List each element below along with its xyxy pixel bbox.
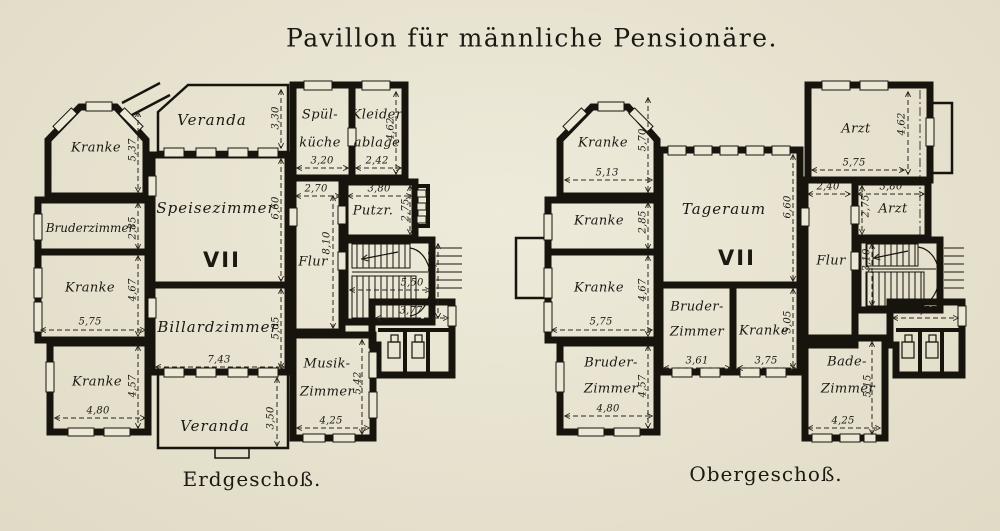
dim-kranke-w3-w-og: 5,75 (589, 317, 612, 328)
room-label-kranke-w2-og: Kranke (574, 214, 624, 229)
dim-flur-h-eg: 8,10 (322, 231, 333, 254)
room-label-veranda-n: Veranda (177, 111, 247, 129)
dim-arzt-n-w: 5,75 (842, 158, 865, 169)
room-label-flur-og: Flur (816, 254, 845, 269)
room-label-arzt-s: Arzt (878, 202, 907, 217)
room-label-bruderzimmer-m-1: Bruder- (670, 300, 724, 315)
dim-kranke-sw-w-eg: 4,80 (86, 406, 109, 417)
dim-bruderzimmer-sw-h: 4,57 (638, 374, 649, 397)
room-label-musikzimmer-2: Zimmer (300, 385, 354, 400)
room-label-tageraum: Tageraum (682, 200, 766, 218)
dim-flur-w-og: 2,40 (816, 182, 839, 193)
room-label-arzt-n: Arzt (841, 122, 870, 137)
room-label-veranda-s: Veranda (180, 417, 250, 435)
room-label-speisezimmer: Speisezimmer (156, 199, 275, 217)
dim-bruderzimmer-sw-w: 4,80 (596, 404, 619, 415)
room-label-bruderzimmer-eg: Bruderzimmer (46, 221, 135, 235)
dim-tageraum-h: 6,60 (783, 195, 794, 218)
caption-erdgeschoss: Erdgeschoß. (183, 467, 322, 491)
dim-kranke-nw-eg: 5,37 (128, 138, 139, 161)
dim-kranke-w-h-eg: 4,67 (128, 278, 139, 301)
dim-kranke-w3-h-og: 4,67 (638, 278, 649, 301)
room-label-putzraum: Putzr. (353, 204, 394, 219)
dim-treppe-w-eg: 5,50 (400, 278, 423, 289)
dim-billardzimmer-h: 5,05 (271, 316, 282, 339)
dim-arzt-n-h: 4,62 (897, 112, 908, 135)
room-label-kranke-sw-eg: Kranke (72, 375, 122, 390)
room-label-spuelkueche-2: küche (299, 136, 341, 151)
room-label-spuelkueche-1: Spül- (302, 108, 338, 123)
room-label-bruderzimmer-sw-2: Zimmer (584, 382, 638, 397)
room-label-bruderzimmer-sw-1: Bruder- (584, 356, 638, 371)
dim-abort-og: 3,77 (913, 306, 936, 317)
dim-putzraum-w: 3,80 (367, 184, 390, 195)
room-label-musikzimmer-1: Musik- (304, 357, 351, 372)
pavilion-numeral-eg: VII (203, 248, 241, 272)
dim-badezimmer-h: 5,15 (863, 374, 874, 397)
dim-speisezimmer-h: 6,60 (271, 196, 282, 219)
dim-abort-eg: 3,77 (399, 306, 422, 317)
room-label-kranke-w-eg: Kranke (65, 281, 115, 296)
page-title: Pavillon für männliche Pensionäre. (286, 24, 778, 53)
dim-bruderzimmer-m-w: 3,61 (685, 356, 708, 367)
dim-billardzimmer-w: 7,43 (207, 355, 230, 366)
dim-treppe-h-og: 3,10 (862, 248, 873, 271)
dim-arzt-s-h: 2,75 (861, 194, 872, 217)
dim-kranke-w2-og: 2,85 (638, 210, 649, 233)
room-label-kranke-nw-og: Kranke (578, 136, 628, 151)
dim-spuelkueche-w: 3,20 (310, 156, 333, 167)
dim-kranke-sw-h-eg: 4,57 (128, 374, 139, 397)
pavilion-numeral-og: VII (718, 246, 756, 270)
dim-musikzimmer-w: 4,25 (319, 416, 342, 427)
room-label-flur-eg: Flur (298, 255, 327, 270)
staircase-obergeschoss (866, 244, 939, 306)
dim-kranke-m-w-og: 3,75 (754, 356, 777, 367)
dim-veranda-n: 3,30 (271, 106, 282, 129)
scanned-floor-plan-page: Pavillon für männliche Pensionäre. Erdge… (0, 0, 1000, 531)
dim-putzraum-h: 2,75 (401, 198, 412, 221)
room-label-bruderzimmer-m-2: Zimmer (670, 325, 724, 340)
room-label-badezimmer-1: Bade- (827, 355, 867, 370)
dim-treppe-h-eg: 3,10 (428, 250, 439, 273)
dim-badezimmer-w: 4,25 (831, 416, 854, 427)
room-label-kranke-w3-og: Kranke (574, 281, 624, 296)
dim-kranke-w-w-eg: 5,75 (78, 317, 101, 328)
dim-kranke-nw-h-og: 5,70 (638, 128, 649, 151)
dim-veranda-s: 3,50 (266, 406, 277, 429)
room-label-kranke-m-og: Kranke (739, 324, 789, 339)
dim-kleiderablage-h: 4,62 (386, 117, 397, 140)
dim-musikzimmer-h: 5,42 (353, 371, 364, 394)
dim-kranke-nw-w-og: 5,13 (595, 168, 618, 179)
room-label-kranke-nw-eg: Kranke (71, 141, 121, 156)
dim-bruderzimmer-eg: 2,85 (128, 216, 139, 239)
floor-plan-drawing (0, 0, 1000, 531)
caption-obergeschoss: Obergeschoß. (689, 462, 842, 486)
dim-kleiderablage-w: 2,42 (365, 156, 388, 167)
dim-arzt-s-w: 3,80 (879, 182, 902, 193)
dim-flur-w-eg: 2,70 (304, 184, 327, 195)
room-label-billardzimmer: Billardzimmer (157, 318, 278, 336)
dim-kranke-m-h-og: 5,05 (783, 310, 794, 333)
